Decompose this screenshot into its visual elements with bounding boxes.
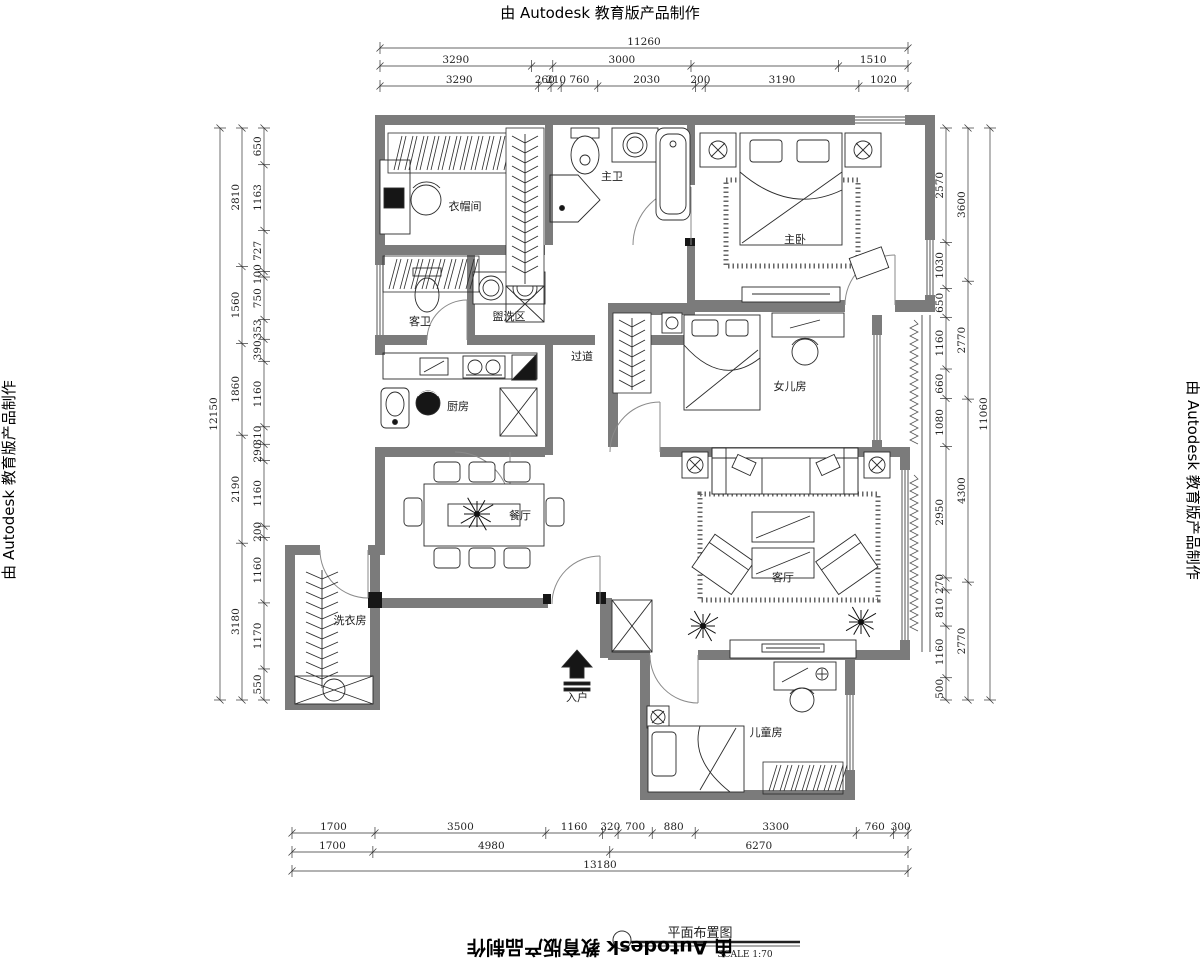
shaft (612, 600, 652, 652)
armchair-right (816, 534, 878, 594)
fridge (500, 388, 537, 436)
nightstand-right (845, 133, 881, 167)
bed-daughter (684, 315, 760, 410)
cloakroom-desk (380, 160, 441, 234)
dim-label: 270 (934, 574, 946, 594)
watermark-left: 由 Autodesk 教育版产品制作 (0, 380, 18, 580)
dim-label: 1510 (860, 54, 887, 66)
dim-label: 1860 (230, 376, 242, 403)
sink-master (612, 128, 658, 162)
label-cloakroom: 衣帽间 (449, 199, 482, 213)
dim-label: 1163 (252, 184, 264, 211)
dim-label: 2810 (230, 184, 242, 211)
window-living (902, 470, 908, 640)
kitchen-corner-unit (512, 355, 536, 380)
dim-label: 320 (600, 821, 620, 833)
dim-label: 1160 (934, 639, 946, 666)
label-entry: 入户 (566, 690, 588, 704)
window-master-top (855, 117, 905, 123)
dim-label: 1160 (252, 381, 264, 408)
dim-label: 1160 (252, 480, 264, 507)
desk-daughter (772, 313, 844, 337)
dim-label: 760 (569, 74, 589, 86)
dim-label: 727 (252, 241, 264, 261)
dim-label: 2950 (934, 499, 946, 526)
label-wash-area: 盥洗区 (493, 310, 526, 323)
dim-label: 4300 (956, 477, 968, 504)
label-master-bedroom: 主卧 (784, 233, 806, 246)
dim-label: 3300 (762, 821, 789, 833)
nightstand-left (700, 133, 736, 167)
dim-label: 1020 (870, 74, 897, 86)
plant (846, 607, 876, 637)
dim-label: 4980 (478, 840, 505, 852)
dim-label: 13180 (583, 859, 616, 871)
label-kids-room: 儿童房 (750, 725, 783, 739)
watermark-bottom: 由 Autodesk 教育版产品制作 (467, 936, 733, 959)
label-guest-bath: 客卫 (409, 314, 431, 328)
toilet-master (571, 128, 599, 174)
bench-master (849, 247, 888, 279)
door-kids (650, 655, 698, 703)
kitchen-sink (381, 388, 409, 428)
kids-ac-unit (647, 706, 669, 728)
dim-label: 700 (625, 821, 645, 833)
kitchen-stool (416, 391, 440, 415)
balcony-zigzag (910, 475, 918, 631)
label-daughter-room: 女儿房 (774, 379, 807, 393)
plant (688, 611, 718, 641)
dim-label: 1080 (934, 409, 946, 436)
dim-label: 11060 (978, 397, 990, 430)
dim-label: 2570 (934, 172, 946, 199)
watermark-top: 由 Autodesk 教育版产品制作 (500, 4, 700, 22)
dim-label: 3290 (446, 74, 473, 86)
dim-label: 200 (690, 74, 710, 86)
dim-label: 1560 (230, 292, 242, 319)
entry-arrow (562, 650, 592, 691)
label-living: 客厅 (772, 570, 794, 584)
dim-label: 3000 (609, 54, 636, 66)
window-daughter (874, 335, 880, 440)
dim-label: 200 (252, 522, 264, 542)
side-table-right (864, 452, 890, 478)
chair-daughter (792, 338, 818, 365)
daughter-unit (662, 313, 682, 333)
dim-label: 1160 (934, 330, 946, 357)
dim-label: 2770 (956, 628, 968, 655)
desk-kids (774, 662, 836, 690)
dim-label: 3290 (442, 54, 469, 66)
dim-label: 210 (546, 74, 566, 86)
watermark-right: 由 Autodesk 教育版产品制作 (1184, 380, 1200, 580)
label-kitchen: 厨房 (447, 400, 469, 413)
chair-kids (790, 688, 814, 712)
label-corridor: 过道 (571, 349, 593, 363)
floorplan-drawing: 由 Autodesk 教育版产品制作 由 Autodesk 教育版产品制作 由 … (0, 0, 1200, 960)
balcony-rail (922, 315, 930, 652)
dim-label: 2030 (633, 74, 660, 86)
washer (295, 676, 373, 704)
dim-label: 760 (865, 821, 885, 833)
dim-label: 3600 (956, 191, 968, 218)
bed-kids (648, 726, 744, 792)
coat-rail (306, 570, 338, 688)
dim-label: 650 (934, 293, 946, 313)
dim-label: 1160 (252, 557, 264, 584)
label-dining: 餐厅 (509, 508, 531, 522)
dim-label: 300 (891, 821, 911, 833)
wardrobe-hatch (763, 762, 847, 794)
dim-label: 1700 (319, 840, 346, 852)
floorplan-canvas: 由 Autodesk 教育版产品制作 由 Autodesk 教育版产品制作 由 … (0, 0, 1200, 960)
sofa (712, 448, 858, 494)
dim-label: 660 (934, 374, 946, 394)
dim-label: 3190 (769, 74, 796, 86)
dresser-master (742, 287, 840, 302)
dim-label: 12150 (208, 397, 220, 430)
shower (550, 175, 600, 222)
bathtub (656, 128, 690, 220)
dim-label: 550 (252, 674, 264, 694)
dim-label: 1160 (561, 821, 588, 833)
dim-label: 650 (252, 136, 264, 156)
window-kids (847, 695, 853, 770)
dim-label: 880 (664, 821, 684, 833)
door-laundry (320, 550, 368, 598)
dim-label: 3180 (230, 608, 242, 635)
dim-label: 1700 (320, 821, 347, 833)
bed-master (740, 133, 842, 245)
balcony-zigzag (910, 320, 918, 444)
label-master-bath: 主卫 (601, 170, 623, 183)
dim-label: 11260 (627, 36, 660, 48)
coffee-table (752, 512, 814, 578)
dim-label: 100 (252, 264, 264, 284)
dim-label: 3500 (447, 821, 474, 833)
dim-label: 290 (252, 442, 264, 462)
window-left (377, 265, 383, 335)
dim-label: 353 (252, 319, 264, 339)
dim-label: 2190 (230, 476, 242, 503)
label-laundry: 洗衣房 (334, 613, 367, 627)
dim-label: 1170 (252, 623, 264, 650)
dim-label: 6270 (746, 840, 773, 852)
cooktop (463, 356, 505, 378)
dim-label: 750 (252, 288, 264, 308)
window-master-right (927, 240, 933, 295)
dim-label: 2770 (956, 327, 968, 354)
door-front (552, 556, 600, 604)
side-table-left (682, 452, 708, 478)
tv-console (730, 640, 856, 658)
dim-label: 390 (252, 340, 264, 360)
dim-label: 1030 (934, 252, 946, 279)
dim-label: 500 (934, 679, 946, 699)
dim-label: 810 (934, 598, 946, 618)
